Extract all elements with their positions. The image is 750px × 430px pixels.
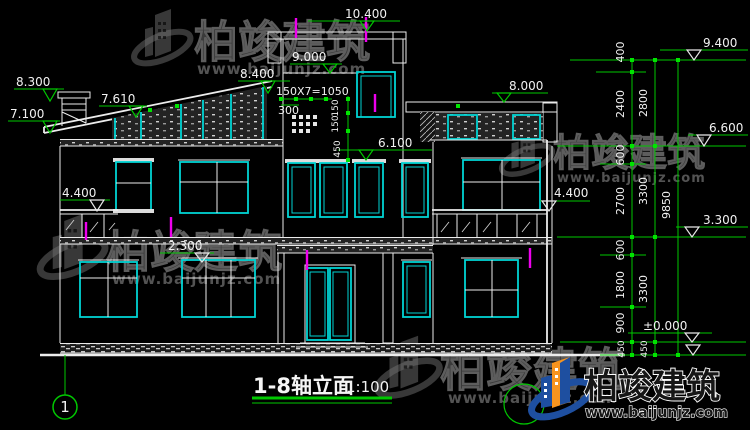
cad-canvas: 柏竣建筑 www.baijunjz.com 柏竣建筑 www.baijunjz.… (0, 0, 750, 430)
level-text: 9.000 (292, 50, 326, 64)
dim-text: 450 (617, 340, 627, 357)
level-text: ±0.000 (643, 319, 687, 333)
watermark-url: www.baijunjz.com (557, 171, 706, 186)
dim-text: 2400 (614, 90, 627, 118)
level-marker-6100: 6.100 (338, 136, 432, 160)
level-text: 7.100 (10, 107, 44, 121)
level-marker-9400: 9.400 (660, 36, 748, 60)
footing-hatch (60, 344, 552, 354)
level-text: 6.100 (378, 136, 412, 150)
drawing-title: 1-8轴立面 (253, 374, 354, 398)
dim-text: 400 (614, 42, 627, 63)
dim-text: 450 (640, 340, 650, 357)
elevation-drawing: 柏竣建筑 www.baijunjz.com 柏竣建筑 www.baijunjz.… (0, 0, 750, 430)
brand-logo-text: 柏竣建筑 (584, 367, 720, 407)
level-text: 4.400 (62, 186, 96, 200)
level-text: 2.300 (168, 239, 202, 253)
grip-dot (148, 108, 152, 112)
watermark-building-icon (130, 9, 195, 70)
window (399, 159, 431, 217)
dim-text: 3300 (637, 275, 650, 303)
level-marker-3300: 3.300 (676, 213, 748, 237)
ground-level-triangle (686, 345, 700, 355)
second-floor-slab (60, 238, 552, 245)
level-marker-4400-left: 4.400 (60, 186, 110, 211)
left-roof-slab-band (60, 140, 283, 147)
dim-text: 150 (331, 99, 341, 116)
dim-text: 600 (614, 240, 627, 261)
watermark-mid-left: 柏竣建筑 www.baijunjz.com (35, 214, 282, 288)
dim-text: 1800 (614, 271, 627, 299)
window (317, 159, 350, 217)
level-text: 8.400 (240, 67, 274, 81)
vent-block-grid (292, 115, 317, 133)
right-clerestory-band (435, 113, 543, 140)
right-roof-slab (406, 102, 557, 112)
porch-pier (383, 253, 393, 343)
window (178, 160, 250, 213)
dim-text: 300 (278, 104, 299, 117)
dim-text: 3300 (637, 177, 650, 205)
level-marker-7100: 7.100 (8, 107, 60, 133)
drawing-scale: 1:100 (346, 378, 389, 396)
watermark-url: www.baijunjz.com (197, 60, 366, 78)
window (461, 258, 522, 317)
grip-dot (456, 104, 460, 108)
dim-text: 150 (331, 115, 341, 132)
level-text: 6.600 (709, 121, 743, 135)
dim-text: 600 (614, 145, 627, 166)
entry-canopy (277, 246, 433, 254)
level-marker-0000: ±0.000 (628, 319, 712, 342)
level-text: 7.610 (101, 92, 135, 106)
axis-number: 1 (60, 398, 70, 416)
dim-text: 2700 (614, 187, 627, 215)
dim-text: 900 (614, 313, 627, 334)
dim-text: 9850 (660, 191, 673, 219)
watermark-text: 柏竣建筑 (553, 131, 705, 175)
window (113, 158, 154, 213)
grip-dot (175, 104, 179, 108)
axis-bubble-1: 1 (53, 355, 77, 419)
level-marker-8000: 8.000 (492, 79, 548, 102)
entry-door (278, 253, 368, 347)
dim-text: 2800 (637, 89, 650, 117)
window (461, 158, 542, 210)
window (352, 159, 386, 217)
brand-logo-url: www.baijunjz.com (585, 405, 728, 421)
dim-text: 450 (333, 140, 343, 157)
watermark-building-icon (35, 214, 109, 284)
level-text: 9.400 (703, 36, 737, 50)
window (285, 159, 318, 217)
right-pier (420, 112, 435, 142)
level-text: 3.300 (703, 213, 737, 227)
level-text: 10.400 (345, 7, 387, 21)
level-text: 8.300 (16, 75, 50, 89)
window (401, 260, 432, 317)
balcony-right (432, 210, 547, 237)
level-marker-8300: 8.300 (14, 75, 64, 101)
dim-text: 150X7=1050 (276, 85, 349, 98)
level-text: 8.000 (509, 79, 543, 93)
level-text: 4.400 (554, 186, 588, 200)
drawing-title-block: 1-8轴立面 1:100 (252, 374, 392, 403)
